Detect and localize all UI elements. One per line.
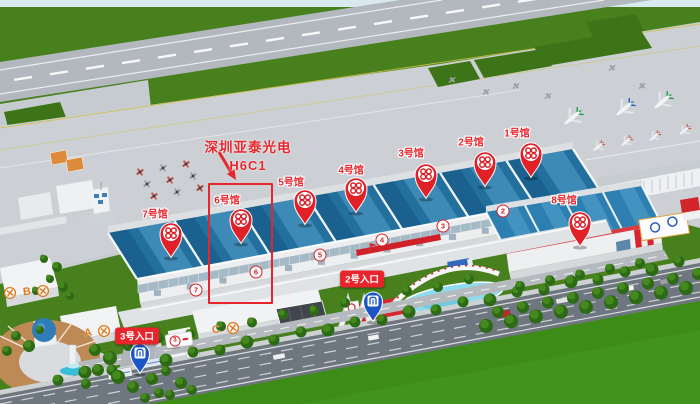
booth-code: H6C1 [202, 158, 294, 173]
hall-pin-5[interactable] [291, 186, 319, 233]
hall-pin-1[interactable] [517, 139, 545, 186]
company-name: 深圳亚泰光电 [202, 136, 294, 156]
location-pin-icon [412, 160, 440, 202]
entrance-pin-icon [128, 341, 152, 377]
location-pin-icon [227, 205, 255, 247]
hall-pin-7[interactable] [157, 219, 185, 266]
hall-pin-8[interactable] [566, 208, 594, 255]
location-pin-icon [291, 186, 319, 228]
entrance-pin-2[interactable] [361, 289, 385, 330]
location-pin-icon [471, 148, 499, 190]
hall-pin-3[interactable] [412, 160, 440, 207]
entrance-pin-icon [361, 289, 385, 325]
exhibition-center-map: 深圳亚泰光电 H6C1 1号馆 2号馆 3号馆 4号馆 5号馆 6号馆 7号馆 [0, 0, 700, 404]
hall-pin-2[interactable] [471, 148, 499, 195]
hall-pin-4[interactable] [342, 174, 370, 221]
location-pin-icon [342, 174, 370, 216]
location-pin-icon [157, 219, 185, 261]
location-pin-icon [517, 139, 545, 181]
company-annotation: 深圳亚泰光电 H6C1 [202, 136, 294, 173]
location-pin-icon [566, 208, 594, 250]
hall-pin-6[interactable] [227, 205, 255, 252]
entrance-pin-3[interactable] [128, 341, 152, 382]
